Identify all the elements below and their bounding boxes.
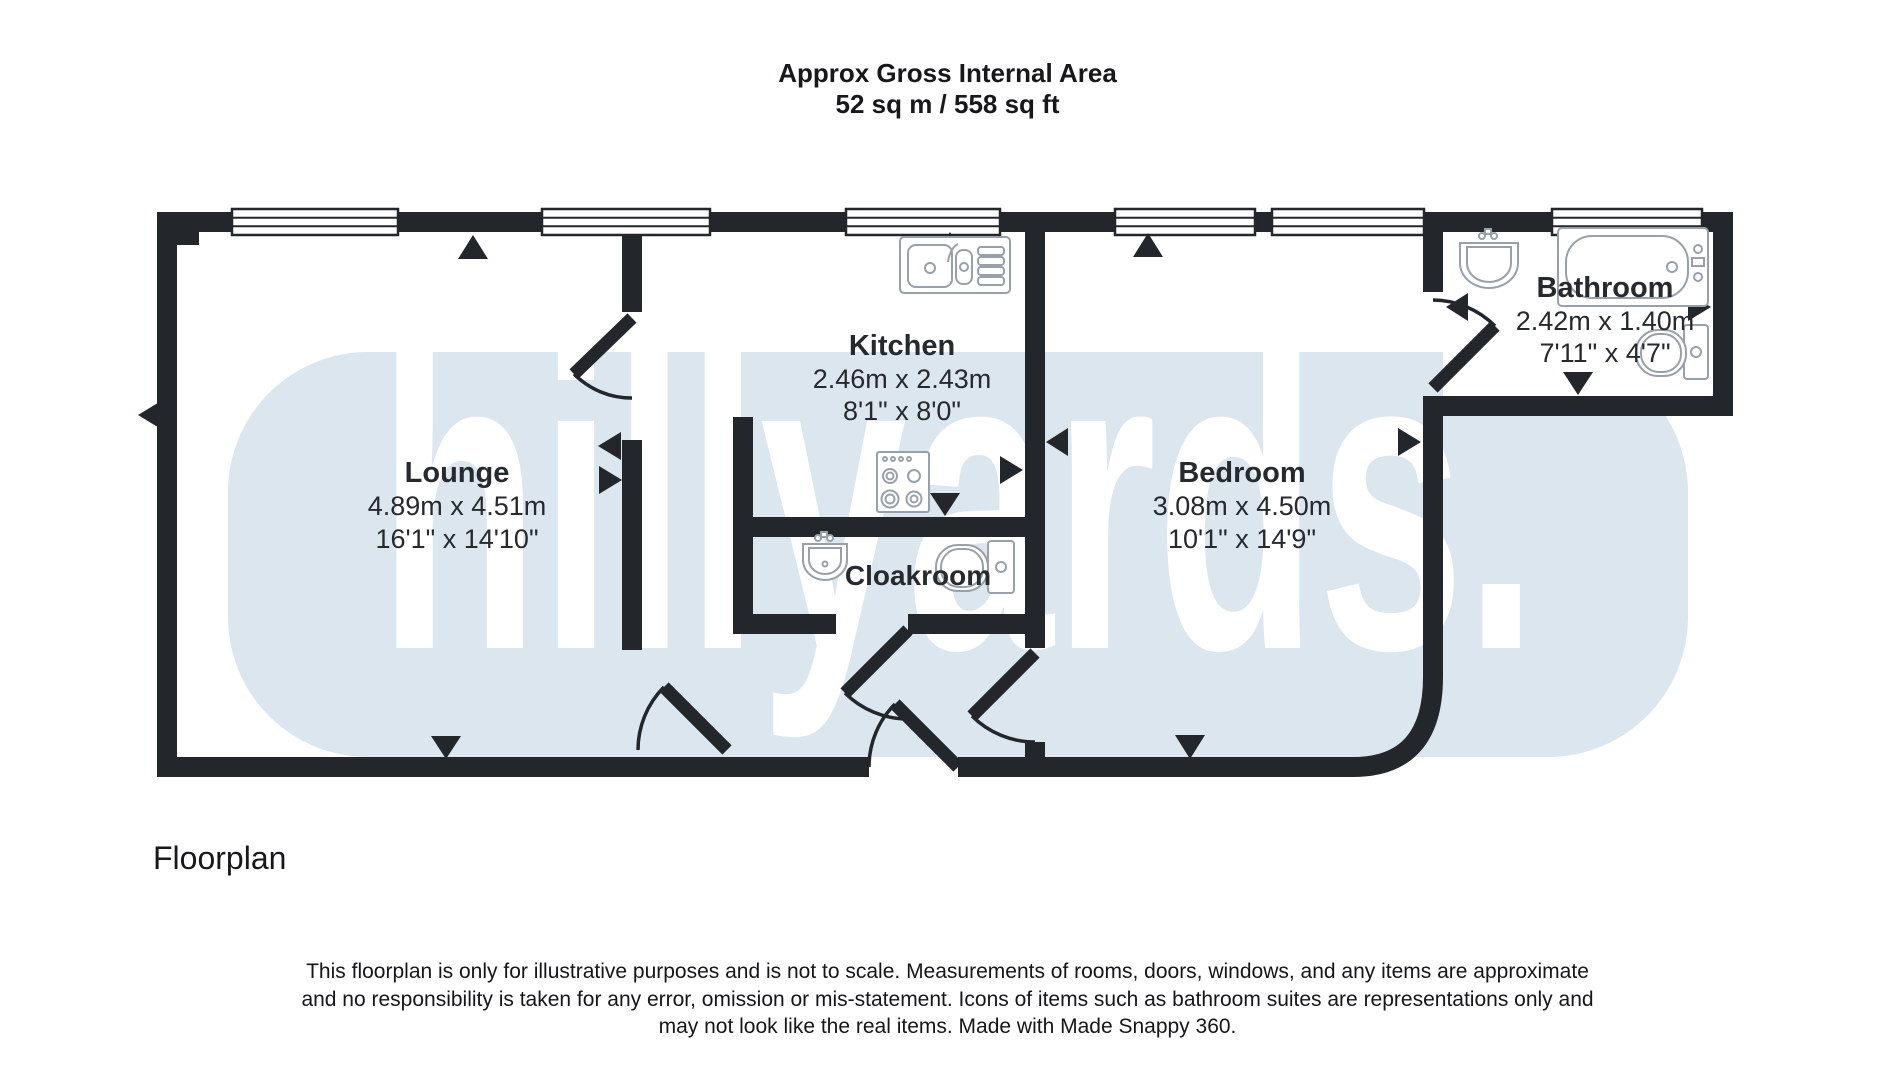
disclaimer-line3: may not look like the real items. Made w… — [0, 1013, 1895, 1041]
lounge-metric: 4.89m x 4.51m — [368, 491, 547, 521]
title-line1: Approx Gross Internal Area — [0, 58, 1895, 89]
window — [1272, 209, 1424, 235]
watermark-text: hillyards. — [378, 260, 1538, 742]
arrow-up-icon — [458, 235, 488, 259]
bathroom-metric: 2.42m x 1.40m — [1516, 306, 1695, 336]
window — [846, 209, 1000, 235]
cloakroom-name: Cloakroom — [845, 560, 991, 591]
bedroom-metric: 3.08m x 4.50m — [1153, 491, 1332, 521]
kitchen-name: Kitchen — [849, 330, 955, 362]
room-label-cloakroom: Cloakroom — [845, 560, 991, 591]
window — [542, 209, 710, 235]
arrow-left-icon — [138, 401, 161, 429]
bedroom-name: Bedroom — [1178, 457, 1305, 489]
lounge-imperial: 16'1" x 14'10" — [375, 524, 538, 554]
bathroom-imperial: 7'11" x 4'7" — [1539, 338, 1670, 368]
room-label-bedroom: Bedroom 3.08m x 4.50m 10'1" x 14'9" — [1153, 457, 1332, 554]
page-title: Approx Gross Internal Area 52 sq m / 558… — [0, 58, 1895, 120]
floorplan-label: Floorplan — [153, 840, 286, 877]
disclaimer-line1: This floorplan is only for illustrative … — [0, 958, 1895, 986]
title-line2: 52 sq m / 558 sq ft — [0, 89, 1895, 120]
bathroom-name: Bathroom — [1537, 272, 1674, 304]
wall-corner-notch — [157, 232, 199, 245]
kitchen-metric: 2.46m x 2.43m — [813, 364, 992, 394]
floorplan-drawing: hillyards. — [0, 0, 1895, 1080]
floorplan-page: hillyards. — [0, 0, 1895, 1080]
arrow-up-icon — [1133, 233, 1163, 257]
kitchen-sink-icon — [900, 237, 1010, 293]
window — [232, 209, 398, 235]
disclaimer-line2: and no responsibility is taken for any e… — [0, 986, 1895, 1014]
bedroom-imperial: 10'1" x 14'9" — [1168, 524, 1316, 554]
window — [1115, 209, 1255, 235]
kitchen-imperial: 8'1" x 8'0" — [843, 396, 961, 426]
hob-icon — [877, 452, 929, 512]
lounge-name: Lounge — [405, 457, 510, 489]
disclaimer: This floorplan is only for illustrative … — [0, 958, 1895, 1041]
room-label-bathroom: Bathroom 2.42m x 1.40m 7'11" x 4'7" — [1516, 272, 1695, 368]
